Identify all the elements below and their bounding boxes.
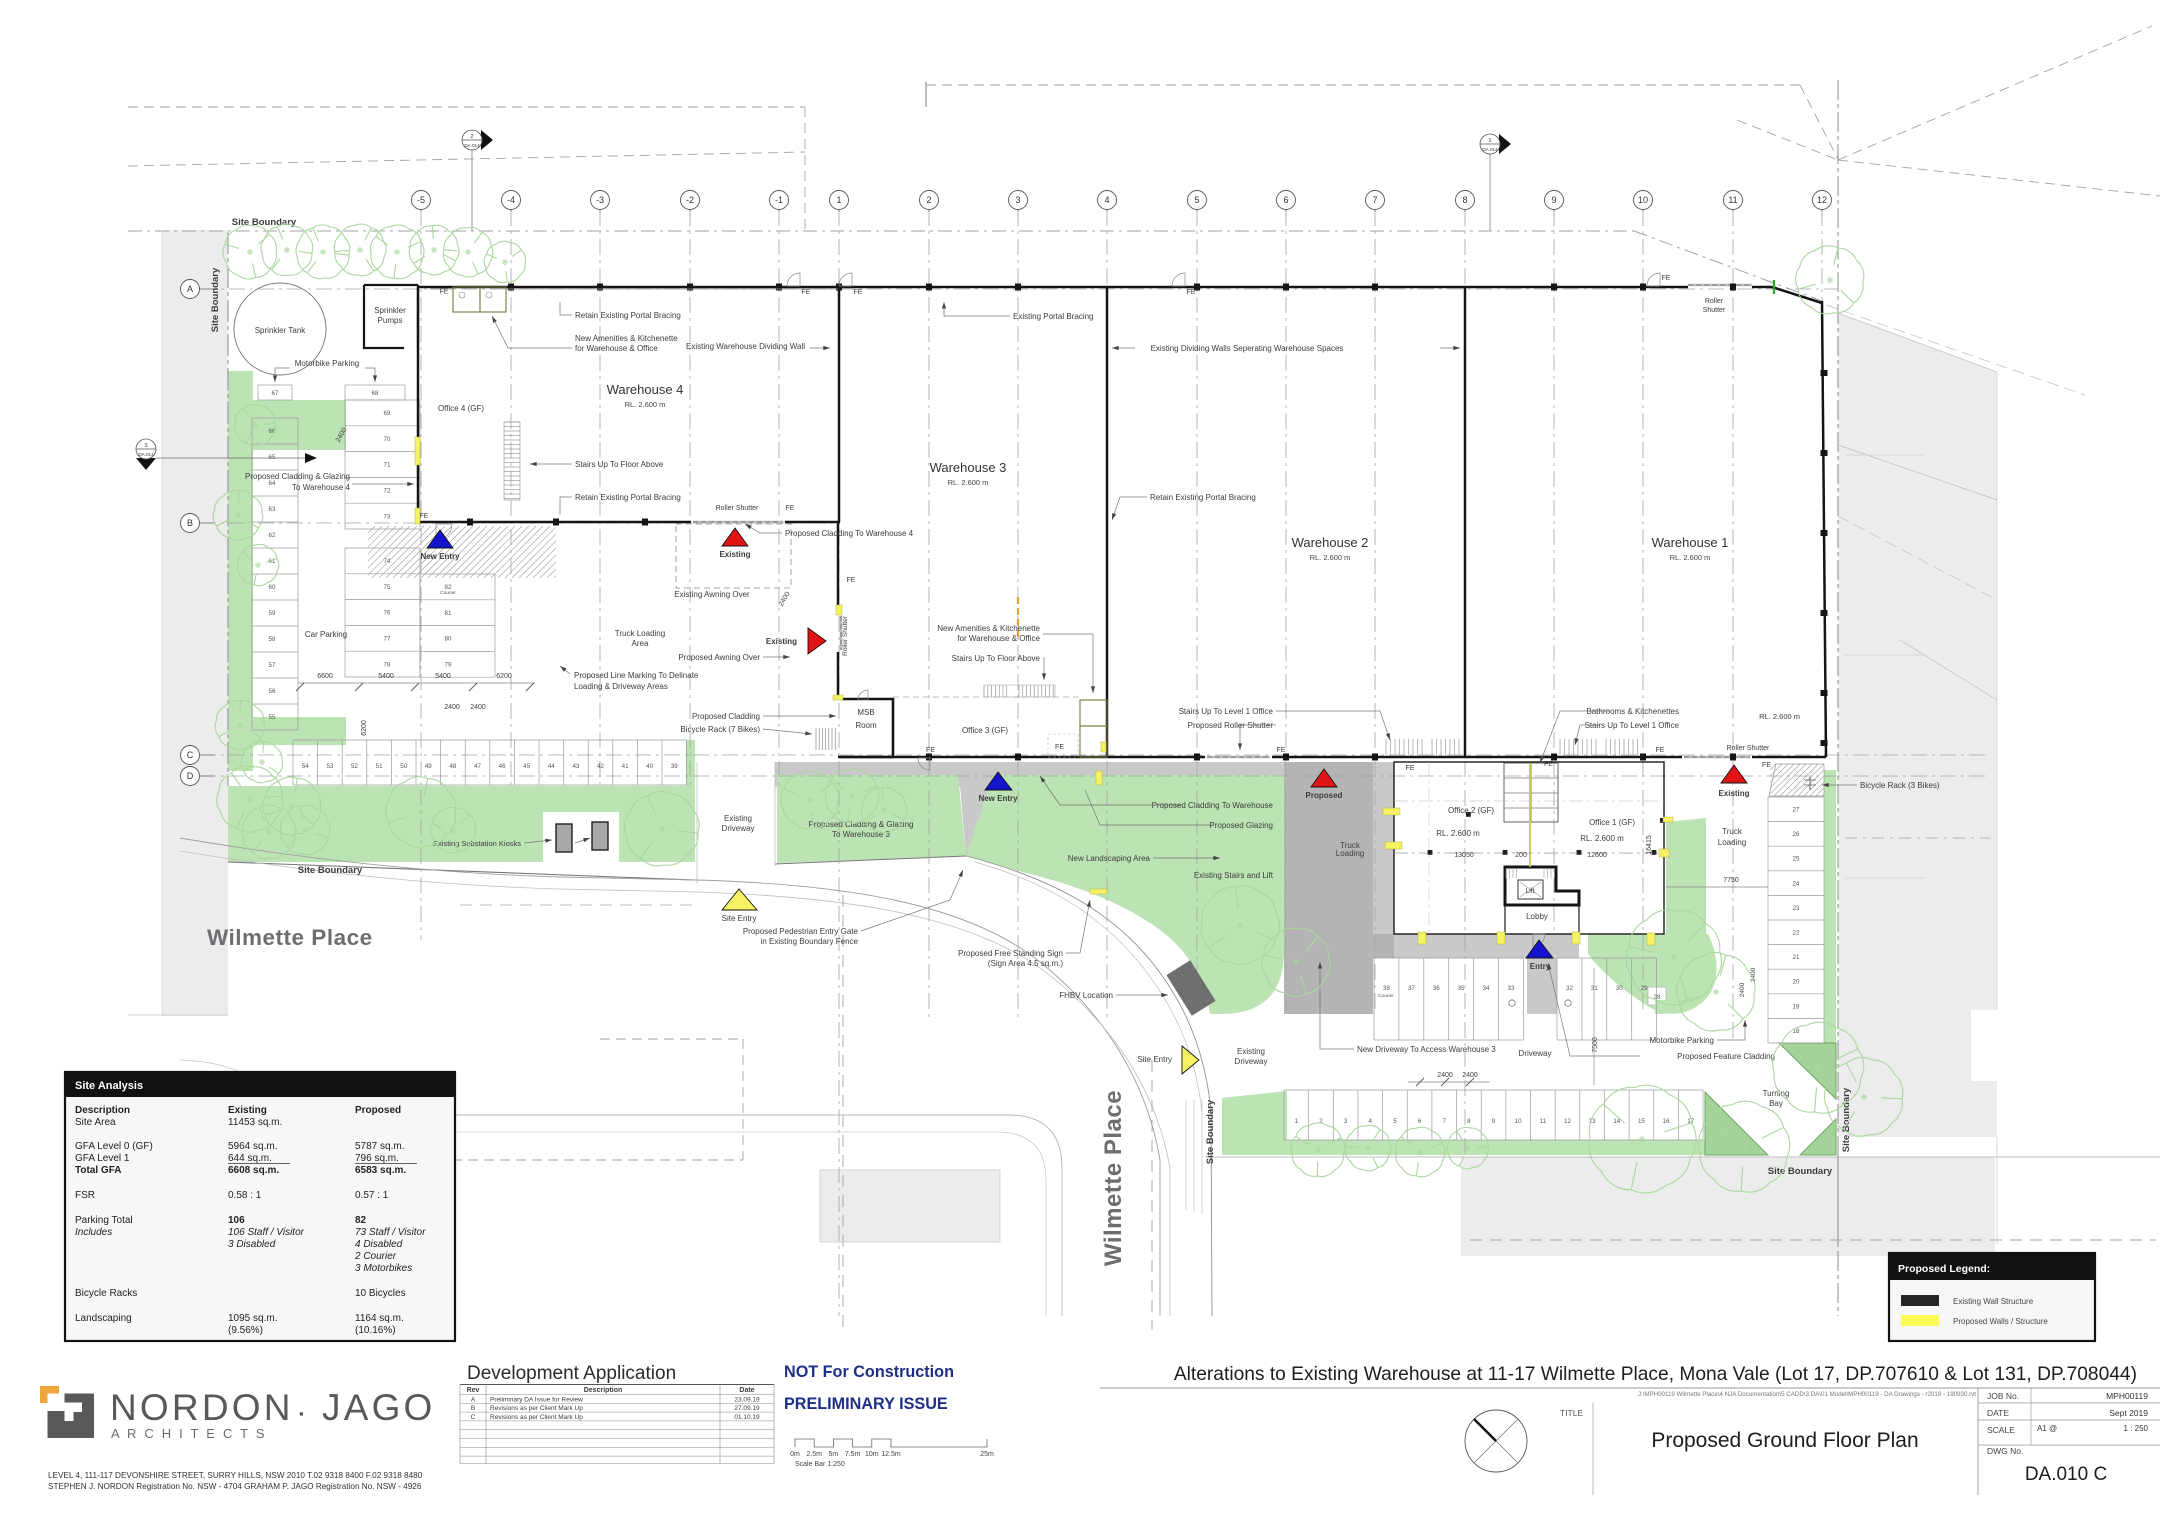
svg-text:10m: 10m [865,1451,879,1458]
svg-text:Site Area: Site Area [75,1117,116,1128]
svg-text:Office 1 (GF): Office 1 (GF) [1589,818,1635,827]
svg-text:-5: -5 [417,195,425,205]
svg-text:FE: FE [420,513,429,520]
svg-text:3: 3 [1344,1118,1348,1125]
svg-text:Description: Description [75,1105,130,1116]
svg-text:SCALE: SCALE [1987,1425,2015,1435]
svg-text:New Entry: New Entry [978,794,1018,803]
svg-text:35: 35 [1458,985,1465,992]
svg-text:FE: FE [1055,744,1064,751]
svg-text:6: 6 [1418,1118,1422,1125]
svg-text:50: 50 [400,763,407,770]
svg-text:7.5m: 7.5m [845,1451,861,1458]
svg-text:71: 71 [384,462,391,469]
svg-text:-2: -2 [686,195,694,205]
svg-text:DA.014: DA.014 [464,143,480,148]
svg-text:Proposed Cladding To Warehouse: Proposed Cladding To Warehouse 4 [785,529,914,538]
svg-text:Site Boundary: Site Boundary [1205,1099,1216,1164]
svg-text:Proposed Pedestrian Entry Gate: Proposed Pedestrian Entry Gate [743,927,859,936]
svg-text:11453 sq.m.: 11453 sq.m. [228,1117,282,1128]
svg-text:Retain Existing Portal Bracing: Retain Existing Portal Bracing [575,311,681,320]
svg-text:C: C [471,1414,476,1421]
svg-text:23.09.19: 23.09.19 [734,1396,760,1403]
svg-text:NORDON: NORDON [110,1387,294,1428]
svg-text:Turning: Turning [1763,1089,1790,1098]
svg-text:Stairs Up To Level 1 Office: Stairs Up To Level 1 Office [1179,707,1274,716]
svg-text:22: 22 [1793,930,1800,937]
svg-text:Proposed Walls / Structure: Proposed Walls / Structure [1953,1317,2048,1326]
svg-text:DA.014: DA.014 [138,452,154,457]
svg-text:Warehouse 3: Warehouse 3 [930,460,1007,475]
svg-text:38: 38 [1383,985,1390,992]
svg-text:45: 45 [523,763,530,770]
svg-text:RL. 2.600 m: RL. 2.600 m [1580,834,1624,843]
svg-text:33: 33 [1508,985,1515,992]
svg-text:69: 69 [384,410,391,417]
svg-text:Courier: Courier [1378,993,1394,999]
svg-text:16415: 16415 [1646,835,1653,855]
svg-text:Sprinkler: Sprinkler [374,306,406,315]
svg-text:Bathrooms & Kitchenettes: Bathrooms & Kitchenettes [1587,707,1680,716]
svg-text:Bay: Bay [1769,1099,1783,1108]
svg-text:106: 106 [228,1215,245,1226]
svg-text:12: 12 [1564,1118,1571,1125]
svg-text:B: B [471,1405,475,1412]
svg-text:7: 7 [1442,1118,1446,1125]
svg-text:FHBV Location: FHBV Location [1059,991,1113,1000]
svg-text:Retain Existing Portal Bracing: Retain Existing Portal Bracing [1150,493,1256,502]
svg-text:44: 44 [548,763,555,770]
svg-text:7: 7 [1372,195,1377,205]
svg-text:Existing Warehouse Dividing Wa: Existing Warehouse Dividing Wall [686,342,805,351]
svg-text:51: 51 [376,763,383,770]
svg-text:Warehouse 2: Warehouse 2 [1292,535,1369,550]
svg-text:Site Boundary: Site Boundary [1841,1087,1852,1152]
svg-text:34: 34 [1483,985,1490,992]
svg-text:Proposed Cladding: Proposed Cladding [692,712,760,721]
svg-text:Description: Description [584,1387,623,1394]
svg-text:25m: 25m [980,1451,994,1458]
svg-text:3: 3 [144,443,147,449]
svg-text:82: 82 [355,1215,367,1226]
svg-text:-3: -3 [596,195,604,205]
svg-text:30: 30 [1616,985,1623,992]
svg-text:Driveway: Driveway [722,824,755,833]
svg-text:FE: FE [1762,762,1771,769]
svg-text:DATE: DATE [1987,1408,2009,1418]
svg-text:73: 73 [384,513,391,520]
svg-text:12: 12 [1817,195,1827,205]
svg-text:FSR: FSR [75,1190,95,1201]
svg-text:7750: 7750 [1723,877,1739,884]
svg-text:6608 sq.m.: 6608 sq.m. [228,1165,279,1176]
svg-text:FE: FE [1656,747,1665,754]
svg-text:200: 200 [1515,852,1527,859]
svg-text:Bicycle Rack (7 Bikes): Bicycle Rack (7 Bikes) [680,725,760,734]
svg-text:Proposed Line Marking To Delin: Proposed Line Marking To Delinate [574,671,699,680]
svg-text:Proposed Free Standing Sign: Proposed Free Standing Sign [958,949,1063,958]
svg-text:▪: ▪ [299,1406,304,1421]
svg-text:0m: 0m [790,1451,800,1458]
svg-text:Existing: Existing [1237,1047,1265,1056]
svg-text:FE: FE [1277,747,1286,754]
svg-text:(9.56%): (9.56%) [228,1325,263,1336]
svg-text:Stairs Up To Floor Above: Stairs Up To Floor Above [575,460,664,469]
svg-text:6200: 6200 [496,673,512,680]
svg-text:Existing: Existing [719,550,750,559]
svg-text:Proposed Ground Floor Plan: Proposed Ground Floor Plan [1651,1429,1918,1452]
svg-text:GFA Level 1: GFA Level 1 [75,1153,130,1164]
svg-text:Proposed Cladding & Glazing: Proposed Cladding & Glazing [245,472,350,481]
svg-text:Roller Shutter: Roller Shutter [716,505,759,512]
svg-text:Revisions as per Client Mark U: Revisions as per Client Mark Up [490,1405,583,1412]
svg-text:77: 77 [384,636,391,643]
svg-text:Proposed Legend:: Proposed Legend: [1898,1263,1990,1275]
svg-text:FE: FE [854,289,863,296]
svg-text:in Existing Boundary Fence: in Existing Boundary Fence [761,937,859,946]
svg-text:20: 20 [1793,979,1800,986]
svg-text:11: 11 [1540,1118,1547,1125]
svg-text:8: 8 [1467,1118,1471,1125]
svg-text:Shutter: Shutter [1703,307,1726,314]
svg-text:Existing Wall Structure: Existing Wall Structure [1953,1297,2034,1306]
svg-text:Existing: Existing [1718,789,1749,798]
svg-text:Area: Area [632,639,649,648]
svg-text:1: 1 [1488,138,1491,144]
svg-text:Sept 2019: Sept 2019 [2109,1408,2148,1418]
svg-text:RL. 2.600 m: RL. 2.600 m [1670,553,1711,562]
svg-text:9: 9 [1551,195,1556,205]
svg-text:Bicycle Racks: Bicycle Racks [75,1288,137,1299]
svg-text:27: 27 [1793,807,1800,814]
svg-text:Office 4 (GF): Office 4 (GF) [438,404,484,413]
svg-text:Proposed Roller Shutter: Proposed Roller Shutter [1188,721,1274,730]
svg-text:2: 2 [470,134,473,140]
svg-text:49: 49 [425,763,432,770]
svg-text:Landscaping: Landscaping [75,1313,132,1324]
svg-text:2400: 2400 [1462,1072,1478,1079]
svg-text:Proposed Glazing: Proposed Glazing [1209,821,1273,830]
svg-text:1 : 250: 1 : 250 [2124,1424,2149,1433]
svg-text:Driveway: Driveway [1235,1057,1268,1066]
svg-text:73 Staff / Visitor: 73 Staff / Visitor [355,1227,426,1238]
svg-text:46: 46 [499,763,506,770]
svg-text:Roller Shutter: Roller Shutter [842,615,849,656]
svg-text:55: 55 [269,714,276,721]
svg-text:DA.014: DA.014 [1482,147,1498,152]
svg-text:4: 4 [1369,1118,1373,1125]
svg-text:01.10.19: 01.10.19 [734,1414,760,1421]
svg-text:Warehouse 4: Warehouse 4 [607,382,684,397]
svg-text:25: 25 [1793,856,1800,863]
svg-text:Proposed Awning Over: Proposed Awning Over [678,653,760,662]
svg-text:2: 2 [926,195,931,205]
svg-text:32: 32 [1566,985,1573,992]
svg-text:Existing: Existing [228,1105,267,1116]
svg-text:15: 15 [1638,1118,1645,1125]
svg-text:60: 60 [269,584,276,591]
svg-text:48: 48 [449,763,456,770]
svg-text:10: 10 [1638,195,1648,205]
svg-text:3 Motorbikes: 3 Motorbikes [355,1263,412,1274]
svg-text:FE: FE [926,747,935,754]
svg-text:9: 9 [1492,1118,1496,1125]
svg-text:37: 37 [1408,985,1415,992]
svg-text:2400: 2400 [1437,1072,1453,1079]
svg-text:Roller Shutter: Roller Shutter [1727,745,1770,752]
svg-text:Motorbike Parking: Motorbike Parking [295,359,359,368]
svg-text:New Driveway To Access Warehou: New Driveway To Access Warehouse 3 [1357,1045,1496,1054]
svg-text:Proposed: Proposed [1306,791,1343,800]
svg-text:RL. 2.600 m: RL. 2.600 m [1310,553,1351,562]
svg-text:DWG No.: DWG No. [1987,1446,2023,1456]
svg-text:Room: Room [855,721,877,730]
svg-text:New Amenities & Kitchenette: New Amenities & Kitchenette [937,624,1040,633]
svg-text:Proposed: Proposed [355,1105,401,1116]
svg-text:Existing Portal Bracing: Existing Portal Bracing [1013,312,1093,321]
svg-text:Office 3 (GF): Office 3 (GF) [962,726,1008,735]
svg-text:Car Parking: Car Parking [305,630,347,639]
svg-text:21: 21 [1793,954,1800,961]
svg-text:72: 72 [384,488,391,495]
svg-text:B: B [187,518,193,528]
svg-text:6600: 6600 [317,673,333,680]
svg-text:Existing: Existing [766,637,797,646]
svg-text:79: 79 [445,662,452,669]
svg-text:6583 sq.m.: 6583 sq.m. [355,1165,406,1176]
svg-text:Includes: Includes [75,1227,112,1238]
svg-text:To Warehouse 3: To Warehouse 3 [832,830,891,839]
svg-text:Retain Existing Portal Bracing: Retain Existing Portal Bracing [575,493,681,502]
svg-text:53: 53 [326,763,333,770]
svg-text:4: 4 [1104,195,1109,205]
svg-text:RL. 2.600 m: RL. 2.600 m [1436,829,1480,838]
svg-text:FE: FE [1544,761,1553,768]
svg-text:Proposed Cladding To Warehouse: Proposed Cladding To Warehouse [1152,801,1274,810]
svg-text:Alterations to Existing Wareho: Alterations to Existing Warehouse at 11-… [1174,1364,2137,1385]
svg-text:Site Entry: Site Entry [722,914,757,923]
svg-text:Site Boundary: Site Boundary [210,267,221,332]
svg-text:Stairs Up To Level 1 Office: Stairs Up To Level 1 Office [1585,721,1680,730]
svg-text:1095 sq.m.: 1095 sq.m. [228,1313,277,1324]
svg-text:A: A [187,284,193,294]
svg-text:JAGO: JAGO [322,1387,436,1428]
svg-text:5: 5 [1393,1118,1397,1125]
svg-text:TITLE: TITLE [1560,1408,1583,1418]
svg-text:Loading: Loading [1336,849,1364,858]
svg-text:PRELIMINARY ISSUE: PRELIMINARY ISSUE [784,1395,948,1413]
svg-text:70: 70 [384,436,391,443]
svg-text:RL. 2.600 m: RL. 2.600 m [625,400,666,409]
svg-text:0.58 : 1: 0.58 : 1 [228,1190,262,1201]
svg-text:5964 sq.m.: 5964 sq.m. [228,1141,277,1152]
svg-text:Wilmette Place: Wilmette Place [1100,1090,1127,1266]
svg-text:23: 23 [1793,905,1800,912]
svg-text:Loading: Loading [1718,838,1746,847]
svg-text:43: 43 [572,763,579,770]
svg-text:2.5m: 2.5m [806,1451,822,1458]
svg-text:Revisions as per Client Mark U: Revisions as per Client Mark Up [490,1414,583,1421]
svg-text:67: 67 [272,390,279,397]
svg-text:52: 52 [351,763,358,770]
svg-text:24: 24 [1793,880,1800,887]
svg-text:63: 63 [269,506,276,513]
svg-text:10 Bicycles: 10 Bicycles [355,1288,406,1299]
svg-text:Rev: Rev [467,1387,480,1394]
svg-text:31: 31 [1591,985,1598,992]
svg-text:26: 26 [1793,831,1800,838]
svg-text:106 Staff / Visitor: 106 Staff / Visitor [228,1227,305,1238]
svg-text:Lobby: Lobby [1526,912,1548,921]
svg-text:Existing: Existing [724,814,752,823]
svg-text:Existing Stairs and Lift: Existing Stairs and Lift [1194,871,1274,880]
svg-text:40: 40 [646,763,653,770]
svg-text:Site Boundary: Site Boundary [298,865,363,876]
svg-text:36: 36 [1433,985,1440,992]
svg-text:(10.16%): (10.16%) [355,1325,396,1336]
svg-text:FE: FE [847,577,856,584]
svg-text:3 Disabled: 3 Disabled [228,1239,276,1250]
svg-text:1164 sq.m.: 1164 sq.m. [355,1313,404,1324]
svg-text:Existing Dividing Walls Sepera: Existing Dividing Walls Seperating Wareh… [1151,344,1344,353]
svg-text:58: 58 [269,636,276,643]
svg-text:Existing Substation Kiosks: Existing Substation Kiosks [433,839,521,848]
svg-text:57: 57 [269,662,276,669]
svg-text:Wilmette Place: Wilmette Place [207,925,373,950]
svg-text:Scale Bar 1:250: Scale Bar 1:250 [795,1461,845,1468]
svg-text:Motorbike Parking: Motorbike Parking [1650,1036,1714,1045]
svg-text:FE: FE [440,289,449,296]
svg-text:To Warehouse 4: To Warehouse 4 [292,483,351,492]
svg-text:42: 42 [597,763,604,770]
svg-text:74: 74 [384,558,391,565]
svg-text:47: 47 [474,763,481,770]
svg-text:Existing Awning Over: Existing Awning Over [674,590,750,599]
svg-text:8: 8 [1462,195,1467,205]
svg-text:29: 29 [1641,985,1648,992]
svg-text:796 sq.m.: 796 sq.m. [355,1153,399,1164]
svg-text:7500: 7500 [1592,1037,1599,1053]
svg-text:LEVEL 4, 111-117 DEVONSHIRE ST: LEVEL 4, 111-117 DEVONSHIRE STREET, SURR… [48,1471,423,1480]
svg-text:Date: Date [739,1387,754,1394]
svg-text:Courier: Courier [440,590,456,596]
svg-text:2 Courier: 2 Courier [354,1251,397,1262]
svg-text:(Sign Area 4.5 sq.m.): (Sign Area 4.5 sq.m.) [988,959,1063,968]
svg-text:41: 41 [622,763,629,770]
svg-text:J:\MPH00119 Wilmette Place\4 N: J:\MPH00119 Wilmette Place\4 NJA Documen… [1638,1391,1976,1398]
svg-text:16: 16 [1663,1118,1670,1125]
svg-text:13050: 13050 [1454,852,1474,859]
svg-text:New Landscaping Area: New Landscaping Area [1068,854,1151,863]
svg-text:Proposed Feature Cladding: Proposed Feature Cladding [1677,1052,1775,1061]
svg-text:12.5m: 12.5m [881,1451,901,1458]
svg-text:-4: -4 [507,195,515,205]
svg-text:Site Boundary: Site Boundary [1768,1166,1833,1177]
svg-text:Total GFA: Total GFA [75,1165,121,1176]
svg-text:64: 64 [269,480,276,487]
svg-text:Warehouse 1: Warehouse 1 [1652,535,1729,550]
svg-text:RL. 2.600 m: RL. 2.600 m [948,478,989,487]
svg-text:5400: 5400 [435,673,451,680]
svg-text:10: 10 [1515,1118,1522,1125]
svg-text:FE: FE [1187,289,1196,296]
svg-text:5m: 5m [829,1451,839,1458]
svg-text:62: 62 [269,532,276,539]
svg-text:Stairs Up To Floor Above: Stairs Up To Floor Above [952,654,1041,663]
svg-text:-1: -1 [775,195,783,205]
svg-text:12600: 12600 [1587,852,1607,859]
svg-text:Pumps: Pumps [378,316,403,325]
svg-text:Office 2 (GF): Office 2 (GF) [1448,806,1494,815]
svg-text:FE: FE [1406,765,1415,772]
svg-text:78: 78 [384,661,391,668]
svg-text:Sprinkler Tank: Sprinkler Tank [255,326,307,335]
svg-text:1: 1 [836,195,841,205]
svg-text:DA.010 C: DA.010 C [2025,1464,2107,1485]
svg-text:A: A [471,1396,476,1403]
svg-text:0.57 : 1: 0.57 : 1 [355,1190,389,1201]
svg-text:MSB: MSB [857,708,874,717]
svg-text:2400: 2400 [1739,982,1746,997]
svg-text:4 Disabled: 4 Disabled [355,1239,403,1250]
svg-text:New Amenities & Kitchenette: New Amenities & Kitchenette [575,334,678,343]
svg-text:76: 76 [384,610,391,617]
svg-text:Preliminary DA Issue for Revie: Preliminary DA Issue for Review [490,1396,583,1403]
svg-text:Truck Loading: Truck Loading [615,629,665,638]
svg-text:81: 81 [445,610,452,617]
svg-text:Site Entry: Site Entry [1137,1055,1172,1064]
svg-text:3: 3 [1015,195,1020,205]
svg-text:A1 @: A1 @ [2037,1424,2057,1433]
svg-text:RL. 2.600 m: RL. 2.600 m [1759,712,1800,721]
svg-text:for Warehouse & Office: for Warehouse & Office [957,634,1040,643]
svg-text:for Warehouse & Office: for Warehouse & Office [575,344,658,353]
svg-text:Truck: Truck [1722,827,1743,836]
svg-text:Bicycle Rack (3 Bikes): Bicycle Rack (3 Bikes) [1860,781,1940,790]
svg-text:FE: FE [1662,275,1671,282]
svg-text:Loading & Driveway Areas: Loading & Driveway Areas [574,682,668,691]
svg-text:6200: 6200 [361,720,368,736]
svg-text:1: 1 [1295,1118,1299,1125]
svg-text:75: 75 [384,584,391,591]
svg-text:MPH00119: MPH00119 [2106,1391,2148,1401]
svg-text:59: 59 [269,610,276,617]
svg-text:Parking Total: Parking Total [75,1215,133,1226]
svg-text:39: 39 [671,763,678,770]
svg-text:D: D [187,771,194,781]
svg-text:2400: 2400 [444,704,460,711]
svg-text:Lift: Lift [1525,888,1534,895]
svg-text:5400: 5400 [378,673,394,680]
svg-text:2400: 2400 [470,704,486,711]
svg-text:Driveway: Driveway [1519,1049,1552,1058]
svg-text:New Entry: New Entry [420,552,460,561]
svg-text:A R C H I T E C T S: A R C H I T E C T S [111,1426,267,1441]
svg-text:56: 56 [269,688,276,695]
svg-text:19: 19 [1793,1003,1800,1010]
svg-text:54: 54 [302,763,309,770]
svg-text:Development Application: Development Application [467,1363,676,1384]
svg-text:Site Analysis: Site Analysis [75,1080,143,1092]
svg-text:FE: FE [786,505,795,512]
svg-text:644 sq.m.: 644 sq.m. [228,1153,272,1164]
svg-text:80: 80 [445,636,452,643]
svg-text:5: 5 [1194,195,1199,205]
svg-text:27.09.19: 27.09.19 [734,1405,760,1412]
svg-text:6: 6 [1283,195,1288,205]
svg-text:Roller: Roller [1705,298,1724,305]
svg-text:11: 11 [1728,195,1737,205]
